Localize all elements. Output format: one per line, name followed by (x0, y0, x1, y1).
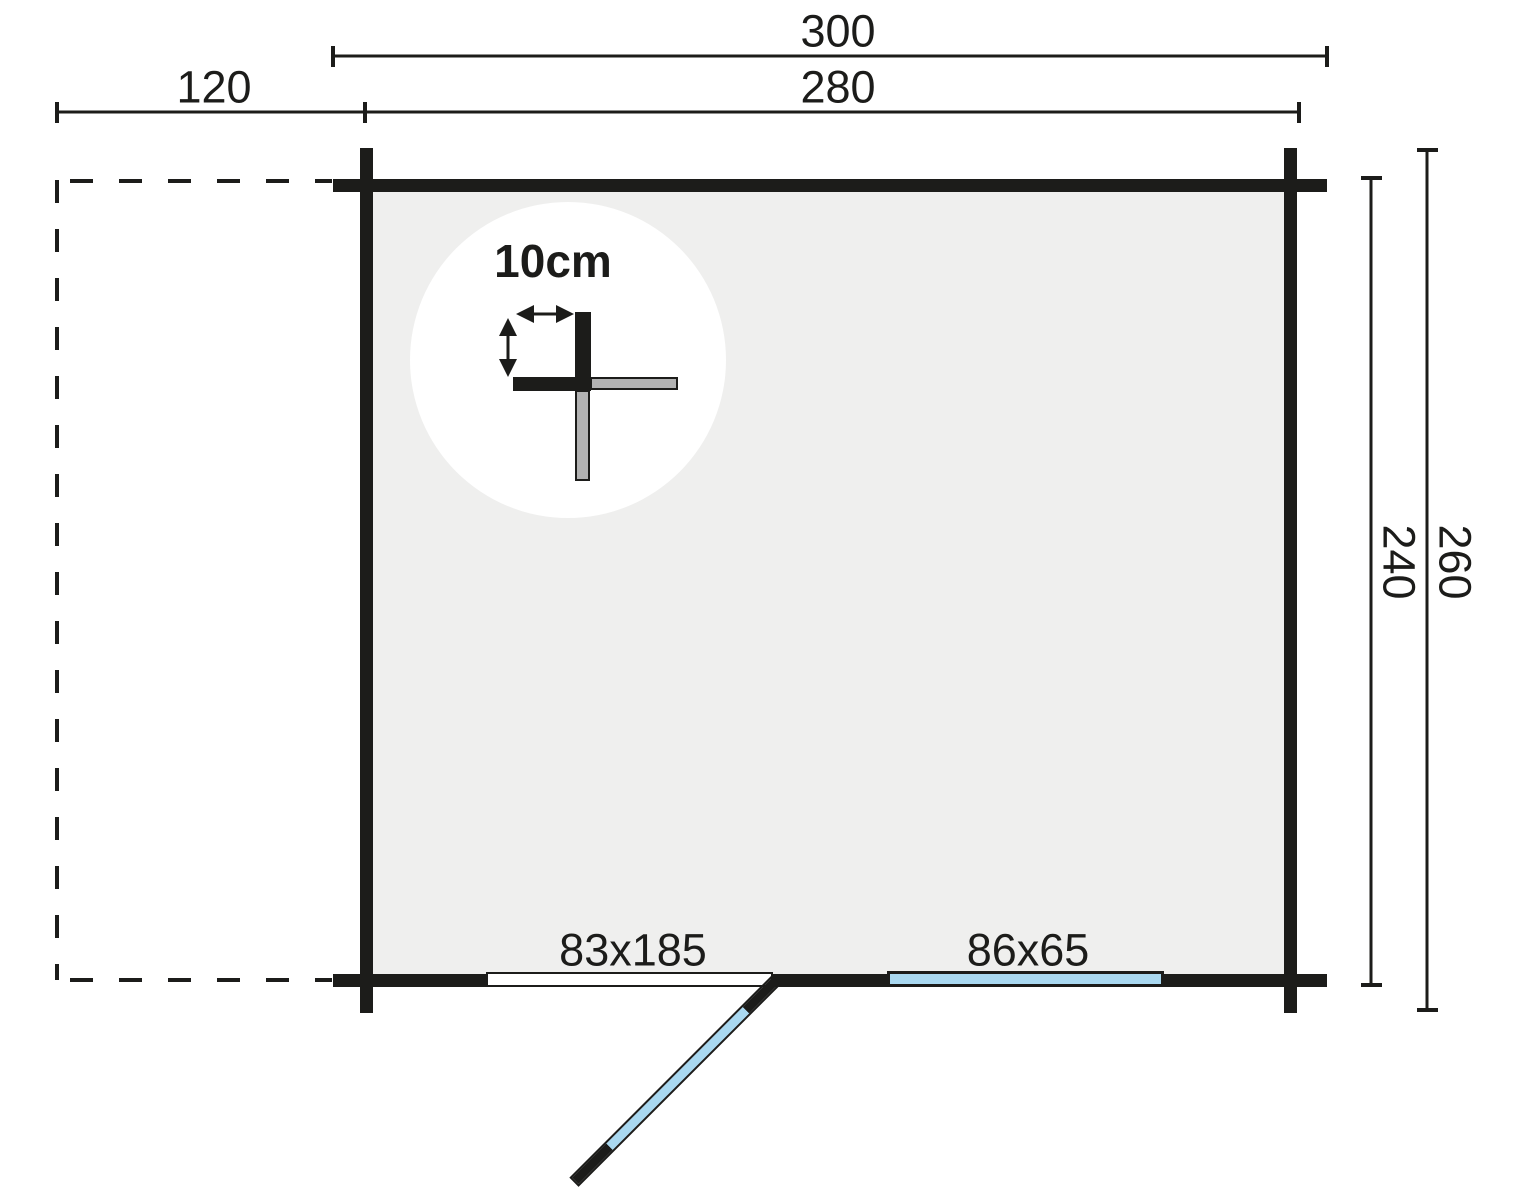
floor-plan: 300 280 120 240 260 83x185 86x65 10cm (0, 0, 1530, 1188)
canopy-dashed-outline (57, 180, 332, 980)
door-leaf-swing (569, 974, 782, 1187)
window-size-label: 86x65 (967, 928, 1090, 973)
inner-depth-label: 240 (1374, 524, 1424, 599)
wall-top (333, 179, 1327, 192)
canopy-width-label: 120 (176, 65, 251, 110)
log-section-gray-vertical (575, 390, 590, 481)
wall-thickness-label: 10cm (494, 238, 612, 284)
wall-bottom (333, 974, 1327, 987)
log-section-gray-horizontal (590, 377, 678, 390)
wall-left (360, 148, 373, 1013)
overall-width-label: 300 (800, 9, 875, 54)
wall-right (1284, 148, 1297, 1013)
outer-width-label: 280 (800, 65, 875, 110)
overall-depth-label: 260 (1430, 524, 1480, 599)
log-section-black-horizontal (513, 377, 591, 391)
door-size-label: 83x185 (559, 928, 707, 973)
